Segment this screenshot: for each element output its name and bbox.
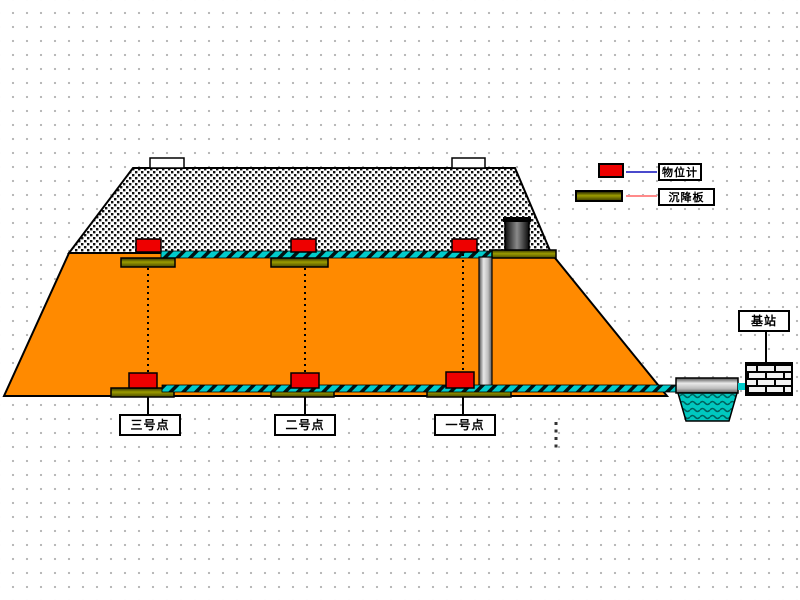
- point-1-label-text: 一号点: [445, 419, 484, 431]
- level-gauge-upper-1: [452, 239, 477, 252]
- legend-level-gauge-swatch: [598, 163, 624, 178]
- level-gauge-lower-3: [129, 373, 157, 388]
- legend-level-gauge-label: 物位计: [658, 163, 702, 181]
- upper-conduit-rope: [161, 251, 497, 258]
- level-gauge-lower-2: [291, 373, 319, 388]
- wellhead-drum-cap: [503, 217, 531, 222]
- monitoring-diagram: [0, 0, 800, 600]
- point-2-label-text: 二号点: [285, 419, 324, 431]
- legend-level-gauge-label-text: 物位计: [662, 167, 698, 178]
- crest-marker-right: [452, 158, 485, 168]
- legend-settlement-plate-line: [626, 195, 657, 197]
- point-3-label-text: 三号点: [130, 419, 169, 431]
- level-gauge-lower-1: [446, 372, 474, 388]
- settlement-plate-upper-2: [271, 258, 328, 267]
- embankment-body: [4, 253, 667, 396]
- base-station-label: 基站: [738, 310, 790, 332]
- crest-marker-left: [150, 158, 184, 168]
- settlement-plate-upper-3: [121, 258, 175, 267]
- level-gauge-upper-2: [291, 239, 316, 252]
- base-station-brick-hut: [746, 363, 792, 395]
- water-pit: [678, 393, 737, 421]
- base-station-label-text: 基站: [751, 315, 777, 327]
- lower-conduit-rope: [162, 385, 676, 392]
- legend-level-gauge-line: [626, 171, 657, 173]
- outlet-pipe: [676, 378, 738, 393]
- diagram-canvas: 三号点 二号点 一号点 基站 物位计 沉降板: [0, 0, 800, 600]
- legend-settlement-plate-label-text: 沉降板: [669, 192, 705, 203]
- legend-settlement-plate-label: 沉降板: [658, 188, 715, 206]
- point-2-label: 二号点: [274, 414, 336, 436]
- point-1-label: 一号点: [434, 414, 496, 436]
- settlement-plate-wellhead: [492, 250, 556, 258]
- wellhead-drum: [505, 221, 529, 250]
- level-gauge-upper-3: [136, 239, 161, 252]
- legend-settlement-plate-swatch: [575, 190, 623, 202]
- point-3-label: 三号点: [119, 414, 181, 436]
- vertical-riser-pipe: [479, 257, 492, 387]
